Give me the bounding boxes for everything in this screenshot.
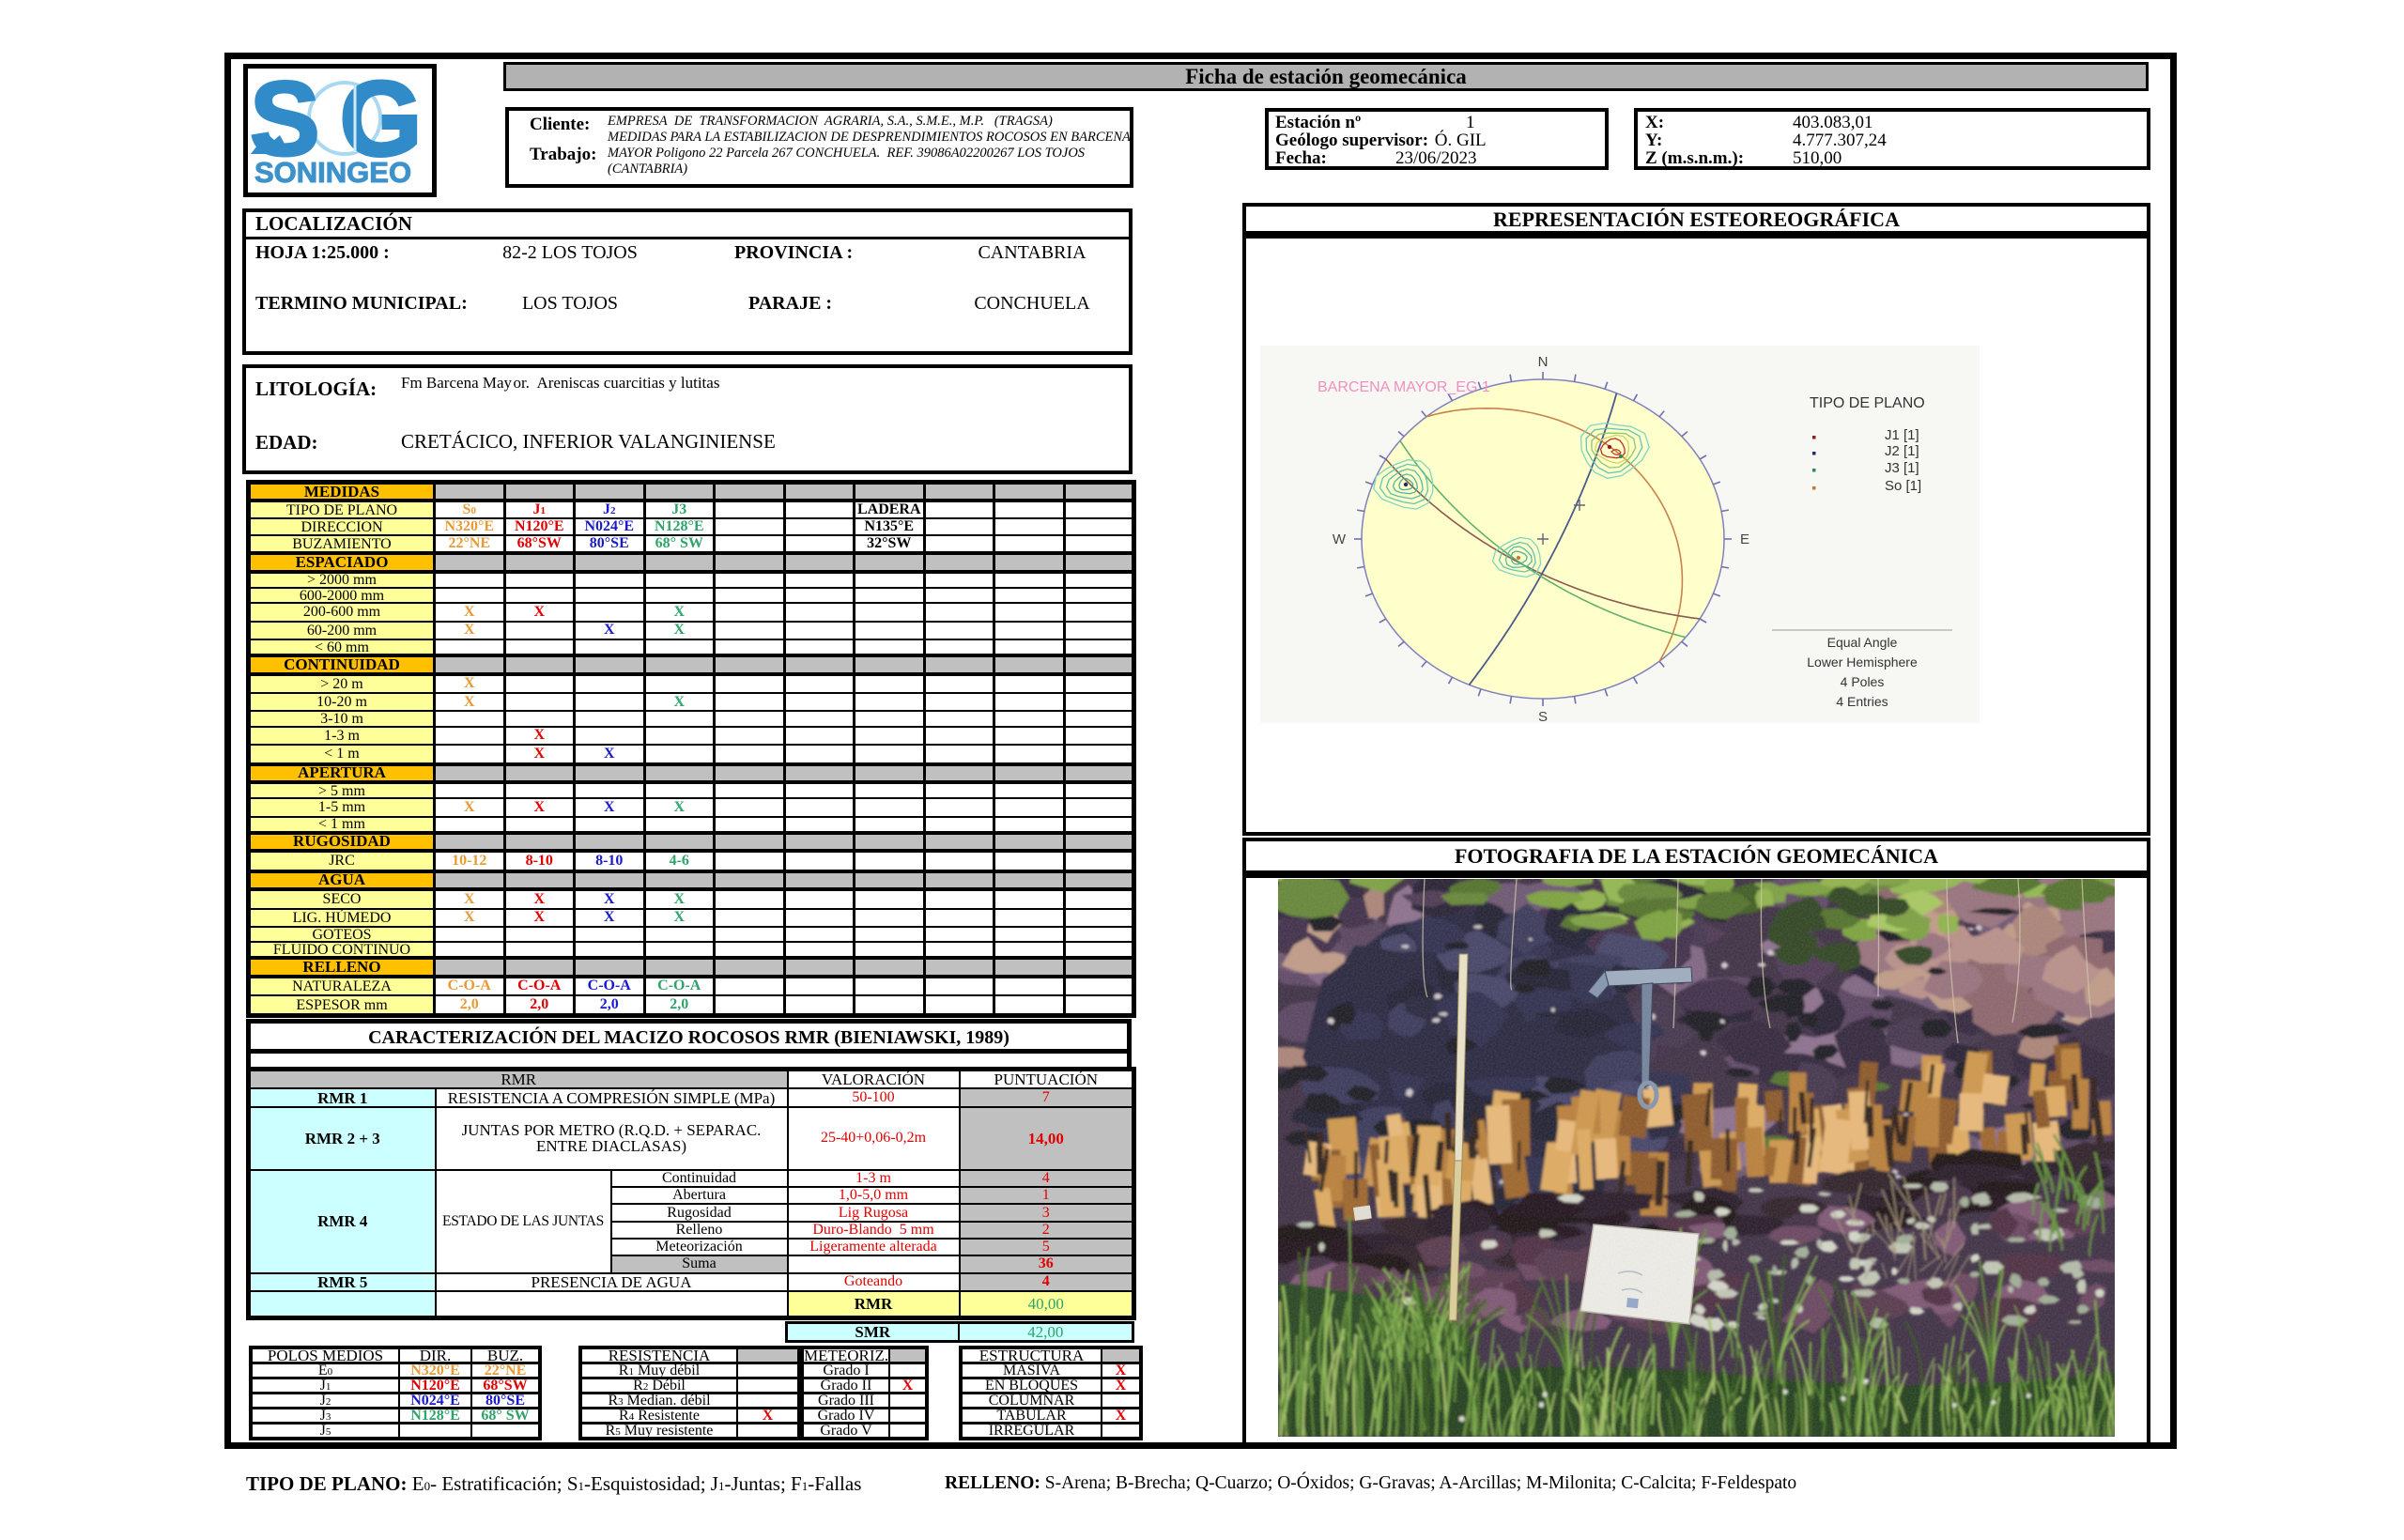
svg-text:SONINGEO: SONINGEO: [254, 156, 411, 189]
svg-text:BARCENA MAYOR_EG 1: BARCENA MAYOR_EG 1: [1318, 379, 1490, 395]
svg-text:S: S: [1538, 709, 1548, 725]
svg-text:J1 [1]: J1 [1]: [1885, 427, 1919, 443]
svg-text:4 Poles: 4 Poles: [1841, 674, 1885, 689]
svg-text:N: N: [1538, 354, 1549, 370]
svg-text:J3 [1]: J3 [1]: [1885, 460, 1919, 476]
svg-text:W: W: [1333, 531, 1347, 547]
svg-text:Equal Angle: Equal Angle: [1827, 635, 1898, 650]
svg-text:So [1]: So [1]: [1885, 478, 1921, 494]
svg-text:TIPO DE PLANO: TIPO DE PLANO: [1810, 395, 1925, 411]
svg-text:J2 [1]: J2 [1]: [1885, 443, 1919, 459]
svg-text:E: E: [1740, 531, 1749, 547]
svg-text:Lower Hemisphere: Lower Hemisphere: [1807, 654, 1918, 670]
svg-text:4 Entries: 4 Entries: [1836, 694, 1888, 709]
